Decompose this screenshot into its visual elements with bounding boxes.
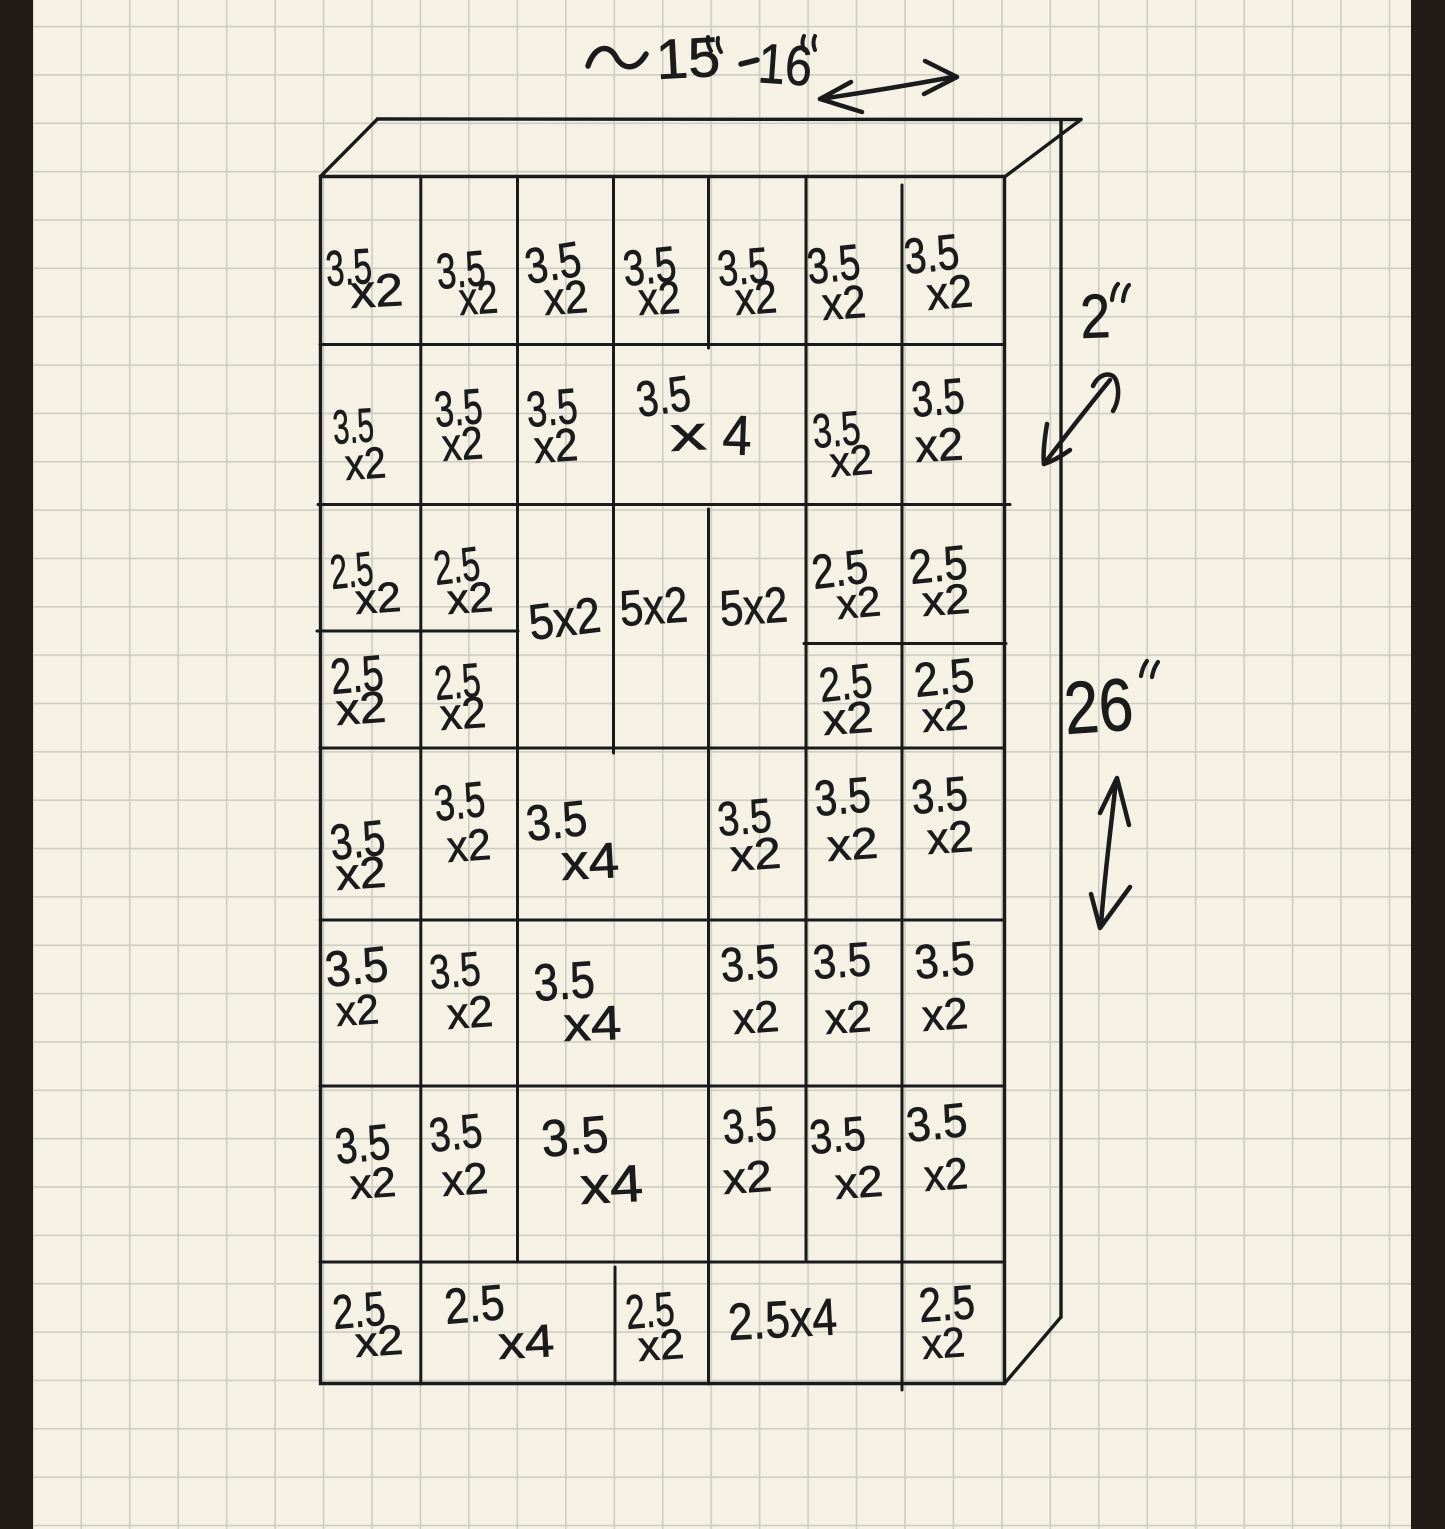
svg-text:26: 26	[1061, 662, 1136, 750]
svg-text:x2: x2	[334, 848, 387, 900]
svg-text:x: x	[669, 407, 708, 462]
svg-text:3.5: 3.5	[904, 1094, 970, 1153]
svg-text:3.5: 3.5	[812, 766, 873, 827]
svg-text:5x2: 5x2	[718, 576, 790, 637]
svg-text:x2: x2	[353, 1316, 404, 1366]
svg-text:x2: x2	[920, 1318, 966, 1368]
svg-text:x2: x2	[920, 691, 969, 741]
svg-text:x4: x4	[497, 1314, 556, 1369]
svg-text:x2: x2	[636, 1320, 685, 1370]
svg-text:5x2: 5x2	[526, 587, 604, 651]
svg-text:x2: x2	[820, 275, 868, 330]
svg-text:x2: x2	[637, 271, 682, 325]
svg-text:x2: x2	[457, 270, 500, 325]
svg-text:x2: x2	[334, 683, 387, 735]
svg-text:x2: x2	[835, 577, 883, 628]
svg-text:x2: x2	[920, 989, 969, 1041]
svg-text:4: 4	[722, 403, 753, 467]
svg-text:x2: x2	[922, 1149, 969, 1201]
svg-text:3.5: 3.5	[811, 933, 873, 990]
svg-text:16: 16	[756, 31, 814, 98]
svg-text:x2: x2	[334, 985, 380, 1035]
svg-text:x2: x2	[728, 829, 782, 881]
svg-text:x2: x2	[920, 575, 971, 625]
svg-text:x2: x2	[833, 1157, 884, 1209]
svg-text:x4: x4	[563, 997, 623, 1052]
svg-text:x2: x2	[440, 416, 485, 471]
svg-text:x2: x2	[445, 820, 492, 872]
svg-text:x2: x2	[821, 693, 874, 745]
svg-text:x2: x2	[825, 819, 879, 871]
svg-text:x2: x2	[721, 1152, 773, 1204]
svg-text:x2: x2	[353, 573, 402, 623]
svg-text:x4: x4	[560, 832, 621, 891]
svg-text:3.5: 3.5	[718, 935, 780, 993]
svg-text:2: 2	[1079, 282, 1111, 352]
svg-text:x2: x2	[828, 435, 875, 486]
svg-text:5x2: 5x2	[618, 576, 690, 637]
svg-text:x2: x2	[542, 270, 590, 325]
svg-text:x2: x2	[348, 1158, 397, 1208]
svg-text:x2: x2	[823, 992, 872, 1044]
svg-text:x2: x2	[733, 270, 779, 325]
svg-text:x2: x2	[343, 438, 387, 490]
svg-text:x2: x2	[914, 418, 965, 472]
svg-text:x4: x4	[579, 1155, 645, 1216]
svg-text:x2: x2	[349, 263, 405, 318]
svg-text:x2: x2	[445, 987, 494, 1039]
svg-text:x2: x2	[924, 264, 974, 320]
svg-text:3.5: 3.5	[912, 932, 976, 990]
svg-text:3.5: 3.5	[720, 1097, 778, 1155]
svg-text:x2: x2	[438, 688, 487, 740]
svg-text:x2: x2	[532, 418, 580, 473]
svg-text:x2: x2	[440, 1154, 489, 1206]
svg-text:15: 15	[654, 25, 721, 91]
svg-text:3.5: 3.5	[807, 1107, 867, 1165]
svg-text:x2: x2	[445, 573, 494, 623]
svg-text:x2: x2	[731, 992, 780, 1044]
svg-text:x2: x2	[925, 812, 974, 864]
svg-text:2.5x4: 2.5x4	[727, 1288, 839, 1352]
